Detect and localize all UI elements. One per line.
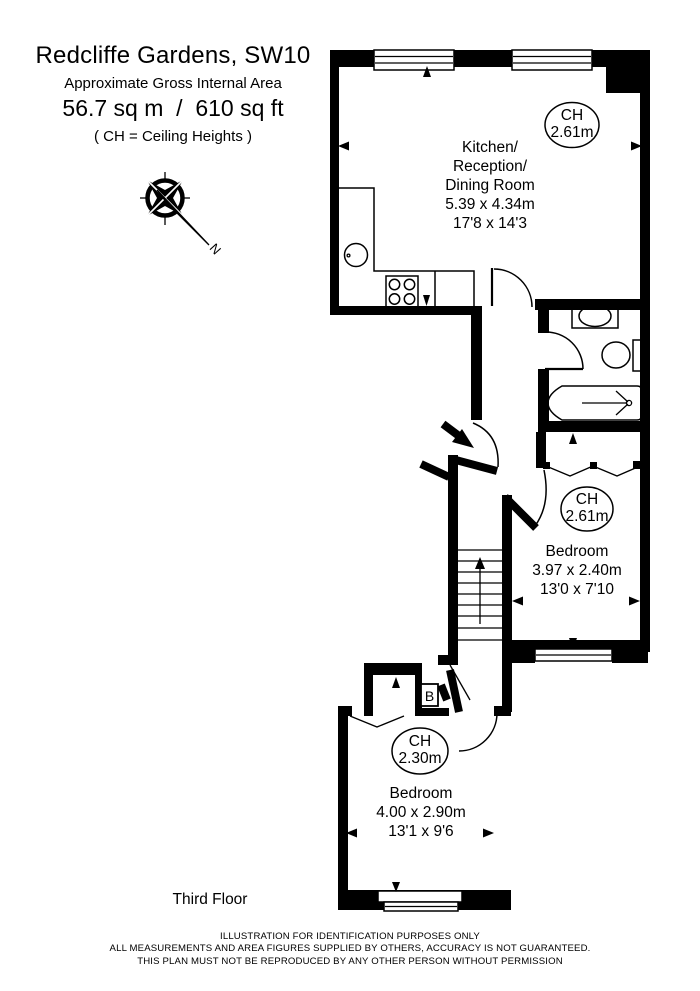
kitchen-name-line3: Dining Room	[445, 177, 535, 194]
bedroom2-dims-metric: 4.00 x 2.90m	[376, 804, 466, 821]
floor-label: Third Floor	[60, 891, 360, 909]
bedroom1-name: Bedroom	[546, 543, 609, 560]
entrance-arrow-icon	[443, 424, 474, 448]
bedroom2-dims-imperial: 13'1 x 9'6	[388, 823, 453, 840]
kitchen-name-line2: Reception/	[453, 158, 528, 175]
compass-icon: N	[140, 172, 224, 257]
bedroom2-ch-value: 2.30m	[398, 750, 441, 767]
disclaimer: ILLUSTRATION FOR IDENTIFICATION PURPOSES…	[0, 931, 700, 968]
bathroom-door	[545, 332, 583, 369]
bedroom2-labels: Bedroom 4.00 x 2.90m 13'1 x 9'6	[376, 785, 466, 840]
bedroom2-door	[450, 670, 497, 751]
kitchen-ch-value: 2.61m	[550, 124, 593, 141]
kitchen-door	[492, 268, 532, 307]
bedroom1-window	[535, 649, 612, 661]
disclaimer-line2: ALL MEASUREMENTS AND AREA FIGURES SUPPLI…	[0, 943, 700, 955]
bedroom2-ch-label: CH	[409, 733, 431, 750]
bedroom1-dims-metric: 3.97 x 2.40m	[532, 562, 622, 579]
kitchen-dims-metric: 5.39 x 4.34m	[445, 196, 535, 213]
kitchen-window-right	[512, 50, 592, 70]
kitchen-ch-label: CH	[561, 107, 583, 124]
compass-north-label: N	[207, 240, 224, 257]
bedroom1-ch-label: CH	[576, 491, 598, 508]
kitchen-window-left	[374, 50, 454, 70]
page-title: Redcliffe Gardens, SW10	[8, 42, 338, 70]
kitchen-ch-badge: CH 2.61m	[545, 103, 599, 148]
disclaimer-line1: ILLUSTRATION FOR IDENTIFICATION PURPOSES…	[0, 931, 700, 943]
bedroom2-ch-badge: CH 2.30m	[392, 728, 448, 774]
boiler-cupboard: B	[421, 684, 438, 706]
boiler-label: B	[425, 688, 434, 704]
kitchen-labels: Kitchen/ Reception/ Dining Room 5.39 x 4…	[445, 139, 535, 232]
area-value: 56.7 sq m / 610 sq ft	[8, 95, 338, 122]
bedroom1-dims-imperial: 13'0 x 7'10	[540, 581, 614, 598]
bedroom1-ch-badge: CH 2.61m	[561, 487, 613, 531]
bedroom1-labels: Bedroom 3.97 x 2.40m 13'0 x 7'10	[532, 543, 622, 598]
bedroom1-ch-value: 2.61m	[565, 508, 608, 525]
stove-icon	[386, 276, 418, 307]
bathtub-icon	[548, 386, 642, 420]
sink-icon	[345, 244, 368, 267]
floorplan-page: B CH 2.61m CH 2.61m CH 2.30m Kitchen/ Re…	[0, 0, 700, 991]
bedroom2-name: Bedroom	[390, 785, 453, 802]
bedroom2-bay-window	[378, 891, 462, 911]
title-block: Redcliffe Gardens, SW10 Approximate Gros…	[8, 42, 338, 145]
ceiling-height-note: ( CH = Ceiling Heights )	[8, 128, 338, 145]
disclaimer-line3: THIS PLAN MUST NOT BE REPRODUCED BY ANY …	[0, 956, 700, 968]
kitchen-dims-imperial: 17'8 x 14'3	[453, 215, 527, 232]
toilet-icon	[602, 340, 646, 371]
kitchen-name-line1: Kitchen/	[462, 139, 519, 156]
bathroom-fixtures	[548, 303, 646, 420]
subtitle: Approximate Gross Internal Area	[8, 75, 338, 92]
floor-plan-svg: B CH 2.61m CH 2.61m CH 2.30m Kitchen/ Re…	[0, 0, 700, 991]
